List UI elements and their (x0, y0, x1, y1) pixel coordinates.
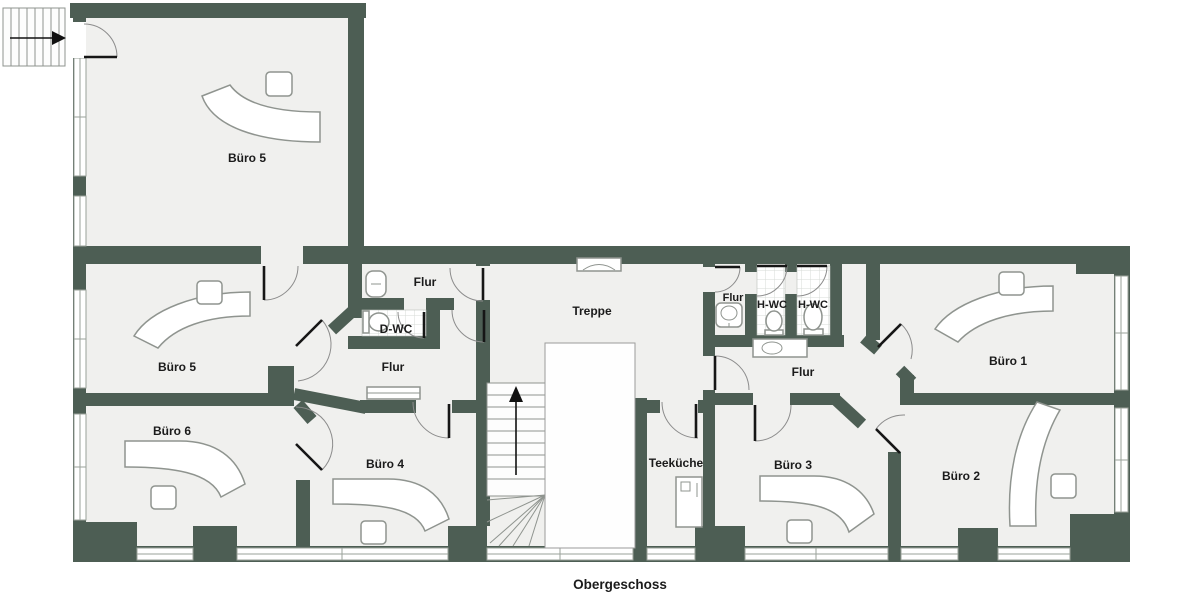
label-flur-wc: Flur (723, 292, 744, 304)
fridge (676, 477, 702, 527)
window (901, 548, 958, 560)
floor-title: Obergeschoss (573, 577, 667, 592)
window (74, 58, 86, 176)
label-buero2: Büro 2 (942, 469, 980, 483)
label-treppe: Treppe (572, 304, 612, 318)
label-buero1: Büro 1 (989, 354, 1027, 368)
label-flur-central: Flur (382, 360, 405, 374)
window (487, 548, 633, 560)
window (74, 196, 86, 246)
radiator (367, 387, 420, 399)
label-buero6: Büro 6 (153, 424, 191, 438)
exterior-stairs (3, 8, 66, 66)
window (237, 548, 448, 560)
chair-buero6 (151, 486, 176, 509)
label-buero3: Büro 3 (774, 458, 812, 472)
chair-buero1 (999, 272, 1024, 295)
stairwell-void (545, 343, 635, 548)
label-buero4: Büro 4 (366, 457, 404, 471)
window (1115, 276, 1128, 390)
window (998, 548, 1070, 560)
chair-buero5-mid (197, 281, 222, 304)
floor-plan-canvas: Büro 5 Büro 5 Büro 6 Büro 4 Flur D-WC Fl… (0, 0, 1200, 600)
vanity-sink (753, 339, 807, 357)
window (647, 548, 695, 560)
window (137, 548, 193, 560)
label-buero5-mid: Büro 5 (158, 360, 196, 374)
chair-buero4 (361, 521, 386, 544)
label-flur-top: Flur (414, 275, 437, 289)
label-d-wc: D-WC (380, 322, 413, 336)
label-teekueche: Teeküche (649, 456, 704, 470)
label-flur-right: Flur (792, 365, 815, 379)
chair-buero2 (1051, 474, 1076, 498)
toilet (765, 311, 783, 335)
chair-buero5-upper (266, 72, 292, 96)
window (745, 548, 888, 560)
radiator (577, 258, 621, 271)
window (74, 414, 86, 520)
label-h-wc-left: H-WC (757, 299, 787, 311)
sink (366, 271, 386, 297)
label-buero5-upper: Büro 5 (228, 151, 266, 165)
floor-plan: Büro 5 Büro 5 Büro 6 Büro 4 Flur D-WC Fl… (0, 0, 1200, 600)
sink (716, 303, 742, 327)
window (74, 290, 86, 388)
chair-buero3 (787, 520, 812, 543)
window (1115, 408, 1128, 512)
label-h-wc-right: H-WC (798, 299, 828, 311)
